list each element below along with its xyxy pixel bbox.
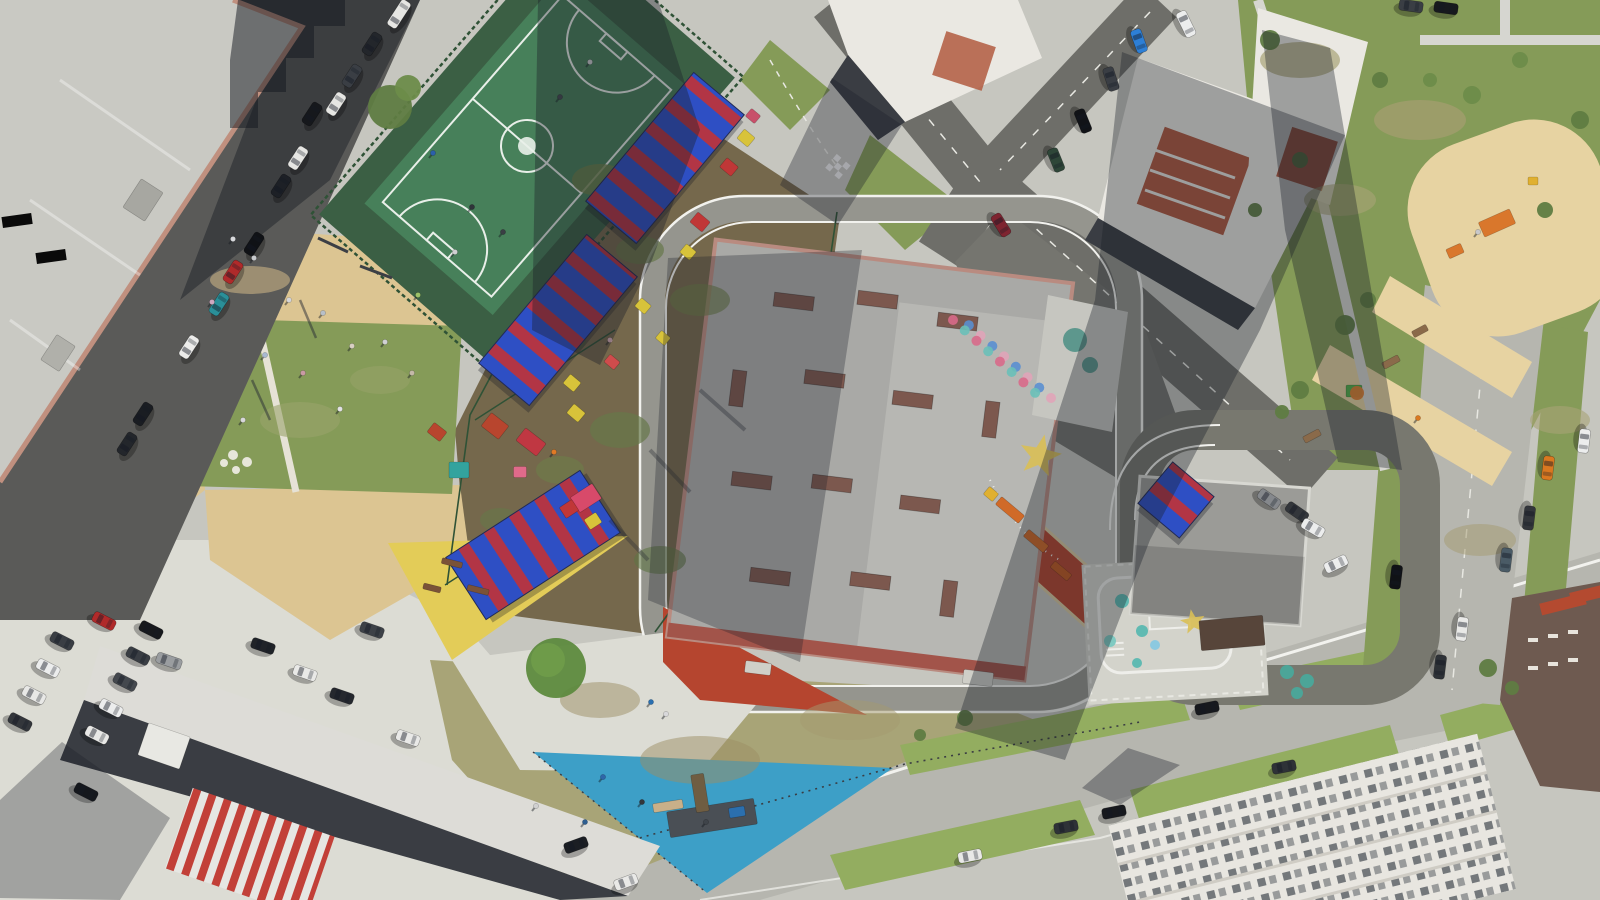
service-building-shade [1130, 545, 1304, 626]
aerial-orthophoto [0, 0, 1600, 900]
aerial-photo-stage [0, 0, 1600, 900]
